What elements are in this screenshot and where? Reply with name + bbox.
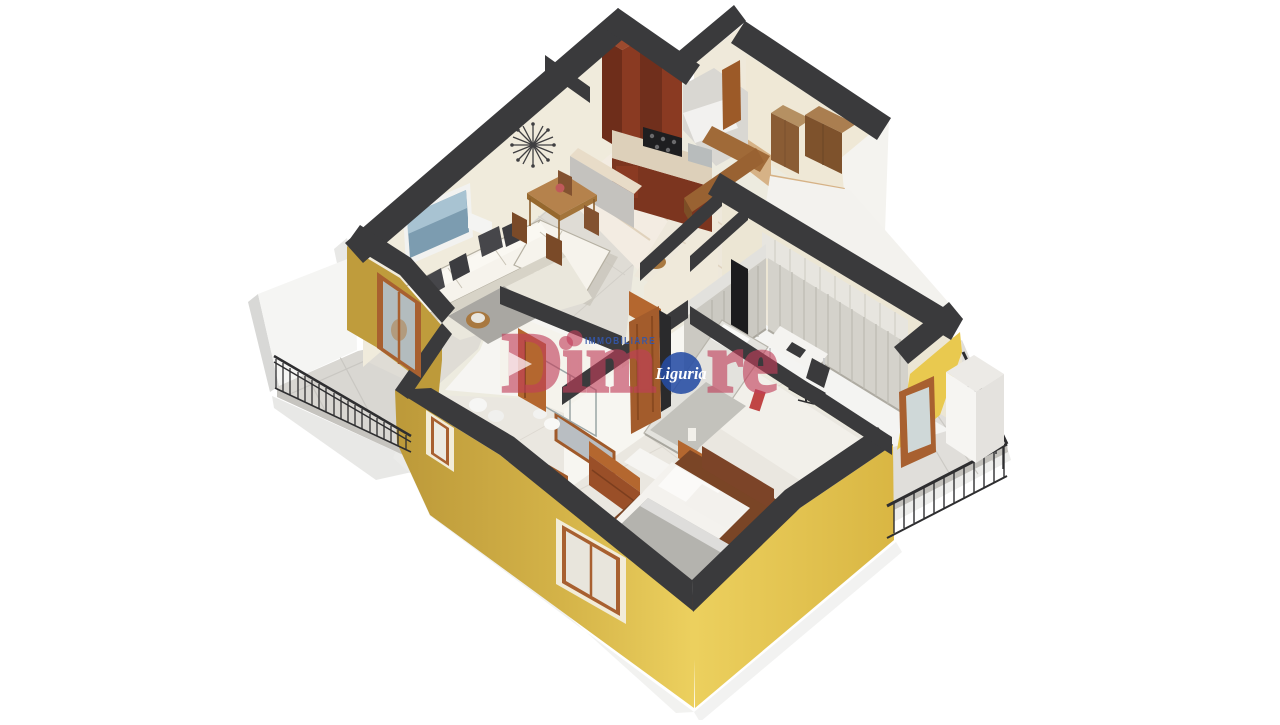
svg-text:Liguria: Liguria — [654, 364, 706, 383]
svg-text:re: re — [707, 316, 778, 410]
